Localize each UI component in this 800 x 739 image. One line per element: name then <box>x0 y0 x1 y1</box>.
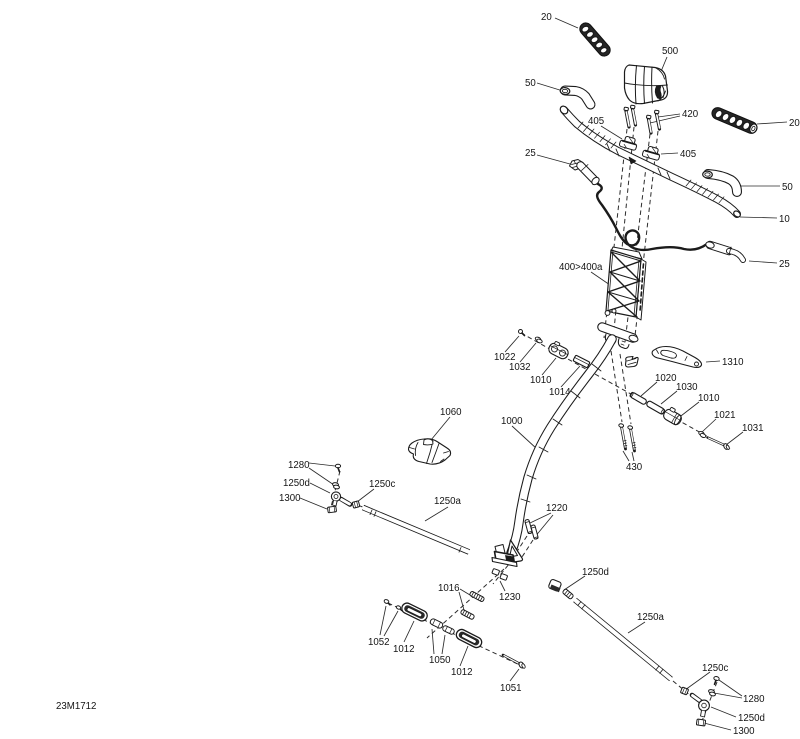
svg-text:500: 500 <box>662 46 679 57</box>
svg-text:1012: 1012 <box>451 667 473 678</box>
svg-text:1050: 1050 <box>429 655 451 666</box>
svg-text:1051: 1051 <box>500 683 522 694</box>
svg-text:50: 50 <box>782 182 793 193</box>
svg-text:50: 50 <box>525 78 536 89</box>
svg-text:1012: 1012 <box>393 644 415 655</box>
svg-text:1220: 1220 <box>546 503 568 514</box>
svg-text:1280: 1280 <box>743 694 765 705</box>
svg-text:1250a: 1250a <box>637 612 665 623</box>
svg-text:1020: 1020 <box>655 373 677 384</box>
svg-text:1010: 1010 <box>698 393 720 404</box>
svg-text:20: 20 <box>541 12 552 23</box>
svg-text:1300: 1300 <box>733 726 755 737</box>
svg-text:405: 405 <box>588 116 604 127</box>
svg-text:1010: 1010 <box>530 375 552 386</box>
svg-text:1300: 1300 <box>279 493 301 504</box>
svg-text:10: 10 <box>779 214 790 225</box>
svg-text:1280: 1280 <box>288 460 310 471</box>
svg-text:20: 20 <box>789 118 800 129</box>
svg-text:1250d: 1250d <box>738 713 765 724</box>
svg-text:1310: 1310 <box>722 357 744 368</box>
svg-text:1032: 1032 <box>509 362 531 373</box>
svg-text:1060: 1060 <box>440 407 462 418</box>
svg-text:25: 25 <box>779 259 790 270</box>
svg-text:1250c: 1250c <box>702 663 729 674</box>
svg-text:23M1712: 23M1712 <box>56 701 96 712</box>
svg-text:1230: 1230 <box>499 592 521 603</box>
svg-text:1250a: 1250a <box>434 496 462 507</box>
svg-text:1031: 1031 <box>742 423 764 434</box>
svg-text:1000: 1000 <box>501 416 523 427</box>
svg-text:405: 405 <box>680 149 696 160</box>
svg-text:1052: 1052 <box>368 637 390 648</box>
svg-text:400>400a: 400>400a <box>559 262 603 273</box>
svg-text:1250d: 1250d <box>582 567 609 578</box>
svg-text:1030: 1030 <box>676 382 698 393</box>
svg-text:1021: 1021 <box>714 410 736 421</box>
svg-text:430: 430 <box>626 462 643 473</box>
svg-text:420: 420 <box>682 109 699 120</box>
svg-text:1016: 1016 <box>438 583 460 594</box>
svg-text:1250c: 1250c <box>369 479 396 490</box>
svg-text:25: 25 <box>525 148 536 159</box>
svg-text:1250d: 1250d <box>283 478 310 489</box>
